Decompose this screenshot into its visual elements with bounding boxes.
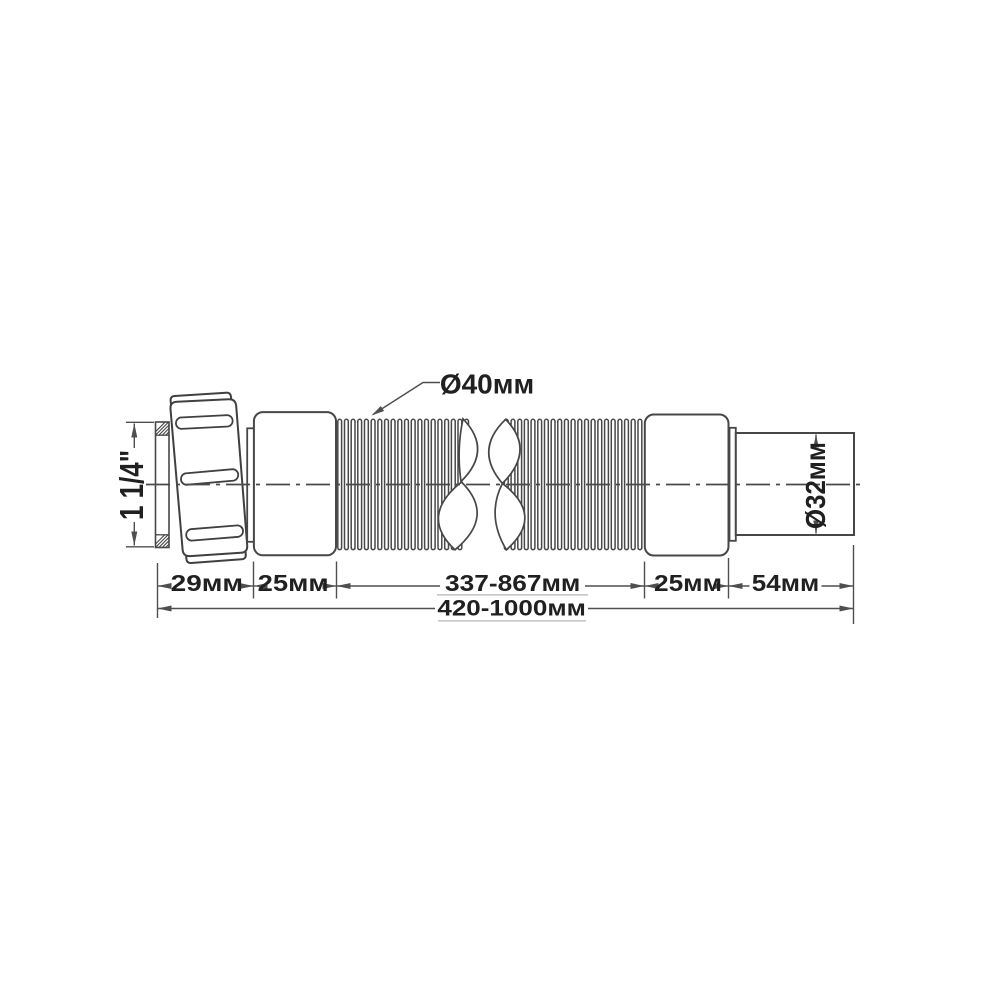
svg-text:337-867мм: 337-867мм bbox=[445, 570, 580, 596]
svg-text:1 1/4": 1 1/4" bbox=[113, 450, 150, 520]
svg-text:25мм: 25мм bbox=[654, 570, 722, 596]
svg-text:29мм: 29мм bbox=[171, 570, 244, 596]
svg-text:25мм: 25мм bbox=[258, 570, 329, 596]
svg-text:Ø40мм: Ø40мм bbox=[440, 369, 534, 400]
svg-text:54мм: 54мм bbox=[752, 570, 819, 596]
svg-text:Ø32мм: Ø32мм bbox=[800, 442, 831, 529]
svg-text:420-1000мм: 420-1000мм bbox=[437, 596, 586, 621]
